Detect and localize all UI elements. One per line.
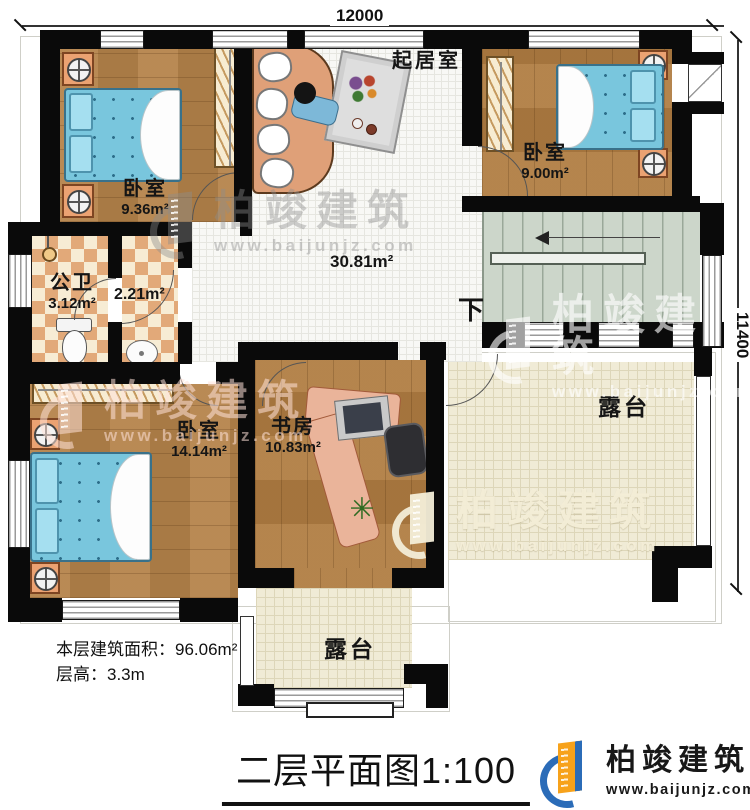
brand-logo: 柏竣建筑 www.baijunjz.com bbox=[540, 742, 750, 802]
lamp-icon bbox=[34, 423, 58, 447]
lamp-icon bbox=[34, 567, 58, 591]
room-label-study: 书房 10.83m² bbox=[248, 416, 338, 456]
room-name: 卧室 bbox=[500, 142, 590, 165]
bay-window bbox=[688, 64, 722, 102]
wall bbox=[238, 342, 255, 588]
stairs-direction-arrow bbox=[528, 231, 549, 245]
sink-drain bbox=[139, 351, 144, 356]
parapet-corner bbox=[238, 684, 274, 706]
wall bbox=[255, 342, 398, 360]
nightstand bbox=[30, 562, 60, 594]
page-title: 二层平面图1:100 bbox=[222, 742, 530, 806]
stairs-direction-line bbox=[548, 237, 660, 239]
brand-name: 柏竣建筑 bbox=[606, 746, 750, 776]
room-label-bedroom-bottom-left: 卧室 14.14m² bbox=[152, 420, 246, 460]
wall bbox=[8, 362, 30, 460]
floor-plan-canvas: ✳ bbox=[0, 0, 750, 810]
room-label-bathroom: 公卫 3.12m² bbox=[30, 272, 114, 312]
parapet-corner bbox=[652, 546, 678, 602]
nightstand bbox=[62, 52, 94, 86]
room-label-living: 起居室 bbox=[392, 50, 461, 73]
wall bbox=[462, 30, 482, 146]
floor-notes: 本层建筑面积：96.06m² 层高：3.3m bbox=[56, 638, 237, 687]
dimension-tick bbox=[729, 31, 742, 44]
dimension-width: 12000 bbox=[330, 6, 389, 26]
wardrobe bbox=[486, 56, 514, 152]
pillow bbox=[630, 70, 656, 104]
wall bbox=[216, 362, 240, 384]
room-label-terrace-right: 露台 bbox=[598, 394, 650, 420]
plant-icon: ✳ bbox=[346, 494, 378, 526]
window bbox=[702, 255, 722, 347]
window bbox=[8, 254, 32, 308]
window bbox=[304, 30, 424, 49]
wall bbox=[238, 568, 294, 588]
room-area-living: 30.81m² bbox=[330, 252, 393, 272]
window bbox=[212, 30, 288, 49]
bay-window-frame bbox=[672, 52, 724, 64]
wall bbox=[288, 30, 304, 49]
wall bbox=[8, 222, 192, 236]
window bbox=[8, 460, 30, 548]
room-name: 公卫 bbox=[30, 272, 114, 295]
parapet-corner bbox=[694, 348, 712, 376]
parapet-corner bbox=[426, 664, 448, 708]
pull-cord bbox=[47, 234, 49, 248]
floor-area-note: 本层建筑面积：96.06m² bbox=[56, 638, 237, 663]
lamp-icon bbox=[67, 58, 91, 82]
window bbox=[100, 30, 144, 49]
wall bbox=[40, 30, 60, 222]
table-item bbox=[366, 124, 377, 135]
pillow bbox=[35, 458, 59, 504]
stairs-handrail bbox=[490, 252, 646, 265]
dimension-height: 11400 bbox=[732, 308, 750, 362]
brand-website: www.baijunjz.com bbox=[606, 782, 750, 798]
wall bbox=[426, 342, 444, 588]
table-item bbox=[352, 118, 363, 129]
nightstand bbox=[62, 184, 94, 218]
room-label-bedroom-top-right: 卧室 9.00m² bbox=[500, 142, 590, 182]
wall bbox=[8, 222, 32, 254]
wall bbox=[180, 598, 238, 622]
window bbox=[528, 30, 640, 49]
room-label-bedroom-top-left: 卧室 9.36m² bbox=[100, 178, 190, 218]
room-area-closet: 2.21m² bbox=[114, 286, 165, 304]
wall bbox=[392, 568, 444, 588]
wall bbox=[144, 30, 212, 49]
room-area: 10.83m² bbox=[248, 439, 338, 456]
room-area: 9.36m² bbox=[100, 201, 190, 218]
wall bbox=[8, 598, 62, 622]
wall bbox=[234, 30, 252, 222]
office-chair bbox=[383, 421, 430, 478]
wall bbox=[700, 203, 724, 255]
lamp-icon bbox=[642, 152, 666, 176]
wall bbox=[482, 322, 524, 348]
pillow bbox=[69, 93, 93, 131]
nightstand bbox=[638, 148, 668, 178]
wall bbox=[178, 322, 192, 364]
wall bbox=[178, 236, 192, 268]
wardrobe-rail bbox=[38, 389, 172, 391]
person-head bbox=[294, 82, 316, 104]
window bbox=[598, 322, 640, 348]
room-area: 3.12m² bbox=[30, 295, 114, 312]
wall bbox=[108, 322, 122, 364]
bay-window-frame bbox=[672, 102, 724, 114]
monitor-screen bbox=[343, 402, 384, 434]
wall bbox=[8, 308, 32, 366]
wall bbox=[672, 110, 692, 196]
room-name: 卧室 bbox=[100, 178, 190, 201]
wall bbox=[8, 362, 180, 384]
dimension-tick bbox=[729, 583, 742, 596]
hallway-floor bbox=[192, 222, 252, 362]
room-name: 书房 bbox=[248, 416, 338, 439]
wall bbox=[564, 322, 598, 348]
wardrobe-rail bbox=[229, 50, 231, 166]
wall bbox=[462, 196, 482, 212]
study-door-threshold bbox=[294, 568, 392, 590]
room-area: 14.14m² bbox=[152, 443, 246, 460]
room-label-terrace-bottom: 露台 bbox=[324, 636, 376, 662]
lamp-icon bbox=[67, 190, 91, 214]
wall bbox=[482, 196, 700, 212]
stairs-area bbox=[482, 212, 700, 322]
terrace-step bbox=[306, 702, 394, 718]
floor-height-note: 层高：3.3m bbox=[56, 663, 237, 688]
parapet bbox=[240, 616, 254, 686]
brand-logo-icon bbox=[540, 742, 594, 802]
stairs-down-label: 下 bbox=[458, 296, 484, 326]
pillow bbox=[630, 108, 656, 142]
nightstand bbox=[30, 418, 60, 450]
toilet-icon bbox=[62, 330, 87, 364]
parapet bbox=[696, 376, 711, 546]
ceiling-lamp-icon bbox=[42, 247, 57, 262]
terrace-right-floor bbox=[448, 362, 694, 560]
window bbox=[672, 322, 694, 348]
pillow bbox=[35, 508, 59, 554]
wall bbox=[640, 322, 672, 348]
wall bbox=[240, 222, 252, 236]
window bbox=[62, 600, 180, 620]
pillow bbox=[69, 135, 93, 173]
room-area: 9.00m² bbox=[500, 165, 590, 182]
room-name: 卧室 bbox=[152, 420, 246, 443]
window bbox=[524, 322, 564, 348]
flowers-icon bbox=[341, 69, 385, 112]
wardrobe-rail bbox=[500, 62, 502, 150]
